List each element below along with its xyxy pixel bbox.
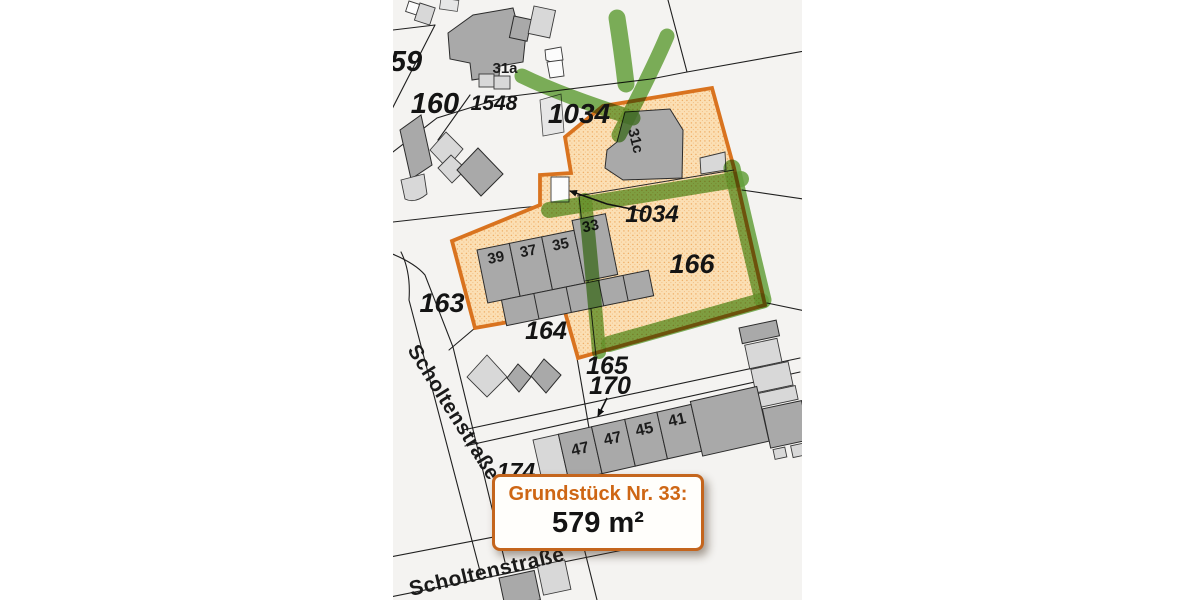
plot-info-title: Grundstück Nr. 33: (497, 483, 699, 506)
parcel-label-166: 166 (669, 249, 715, 279)
parcel-label-1034-mid: 1034 (625, 201, 678, 228)
house-number-35: 35 (551, 235, 571, 255)
parcel-label-163: 163 (419, 288, 464, 318)
parcel-label-1034-top: 1034 (548, 98, 611, 129)
house-number-39: 39 (486, 248, 506, 268)
plot-info-box: Grundstück Nr. 33: 579 m² (492, 474, 704, 551)
parcel-label-164: 164 (525, 317, 567, 345)
parcel-label-1548: 1548 (471, 92, 518, 115)
parcel-label-59: 59 (393, 46, 422, 78)
cadastral-map: 39 37 35 33 47 47 45 41 (393, 0, 802, 600)
plot-info-area: 579 m² (497, 508, 699, 540)
small-white-building (551, 177, 569, 202)
parcel-label-160: 160 (411, 88, 459, 120)
house-number-37: 37 (518, 241, 538, 261)
house-number-31a: 31a (492, 60, 518, 77)
screenshot-stage: 39 37 35 33 47 47 45 41 (0, 0, 1200, 600)
parcel-label-170: 170 (589, 372, 631, 400)
